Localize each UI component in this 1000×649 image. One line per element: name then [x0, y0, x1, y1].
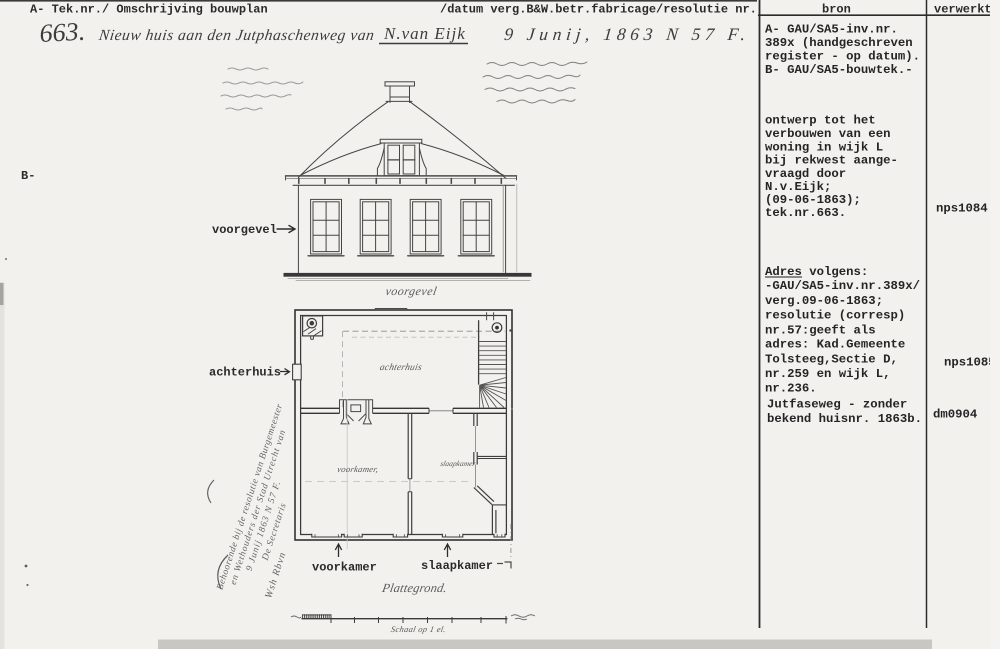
svg-text:voorgevel: voorgevel [384, 284, 438, 298]
svg-text:dm0904: dm0904 [933, 408, 978, 422]
svg-text:tek.nr.663.: tek.nr.663. [765, 206, 846, 220]
svg-text:/datum verg.B&W.betr.fabricage: /datum verg.B&W.betr.fabricage/resolutie… [440, 3, 757, 17]
svg-text:adres: Kad.Gemeente: adres: Kad.Gemeente [765, 338, 905, 352]
svg-text:Schaal op 1 el.: Schaal op 1 el. [390, 624, 447, 634]
svg-text:nps1084: nps1084 [936, 202, 988, 216]
svg-text:ontwerp tot het: ontwerp tot het [765, 114, 876, 128]
svg-text:A- Tek.nr./ Omschrijving bouwp: A- Tek.nr./ Omschrijving bouwplan [30, 3, 268, 17]
svg-text:slaapkamer: slaapkamer [440, 459, 477, 468]
svg-text:register - op datum).: register - op datum). [765, 50, 920, 64]
svg-text:Nieuw huis aan den Jutphaschen: Nieuw huis aan den Jutphaschenweg van [97, 27, 376, 44]
svg-text:verg.09-06-1863;: verg.09-06-1863; [765, 294, 883, 308]
svg-text:nr.57:geeft als: nr.57:geeft als [765, 323, 876, 337]
svg-text:(09-06-1863);: (09-06-1863); [765, 193, 861, 207]
svg-text:389x (handgeschreven: 389x (handgeschreven [765, 36, 913, 50]
svg-text:slaapkamer: slaapkamer [421, 559, 493, 573]
svg-text:bekend huisnr. 1863b.: bekend huisnr. 1863b. [767, 412, 922, 426]
svg-text:Plattegrond.: Plattegrond. [380, 581, 448, 595]
svg-text:nps1085: nps1085 [944, 356, 996, 370]
svg-text:9 Junij, 1863 N 57 F.: 9 Junij, 1863 N 57 F. [503, 24, 751, 44]
svg-text:nr.259 en wijk L,: nr.259 en wijk L, [765, 367, 890, 381]
svg-text:N.v.Eijk;: N.v.Eijk; [765, 180, 831, 194]
svg-text:woning in wijk L: woning in wijk L [765, 141, 883, 155]
svg-text:663.: 663. [39, 17, 86, 48]
svg-text:Tolsteeg,Sectie D,: Tolsteeg,Sectie D, [765, 352, 898, 366]
svg-text:achterhuis: achterhuis [379, 362, 423, 373]
svg-text:B- GAU/SA5-bouwtek.-: B- GAU/SA5-bouwtek.- [765, 63, 913, 77]
svg-text:voorkamer: voorkamer [312, 561, 377, 575]
svg-text:-GAU/SA5-inv.nr.389x/: -GAU/SA5-inv.nr.389x/ [765, 279, 920, 293]
svg-text:N.van Eijk: N.van Eijk [383, 24, 466, 43]
svg-text:verbouwen van een: verbouwen van een [765, 127, 890, 141]
svg-text:B-: B- [21, 169, 35, 183]
svg-text:voorkamer,: voorkamer, [336, 464, 379, 474]
svg-text:nr.236.: nr.236. [765, 381, 817, 395]
svg-text:resolutie (corresp): resolutie (corresp) [765, 309, 905, 323]
svg-text:achterhuis: achterhuis [209, 366, 281, 380]
svg-text:voorgevel: voorgevel [212, 223, 277, 237]
svg-text:bij rekwest aange-: bij rekwest aange- [765, 154, 898, 168]
svg-text:Jutfaseweg - zonder: Jutfaseweg - zonder [767, 397, 907, 411]
svg-text:A- GAU/SA5-inv.nr.: A- GAU/SA5-inv.nr. [765, 23, 898, 37]
